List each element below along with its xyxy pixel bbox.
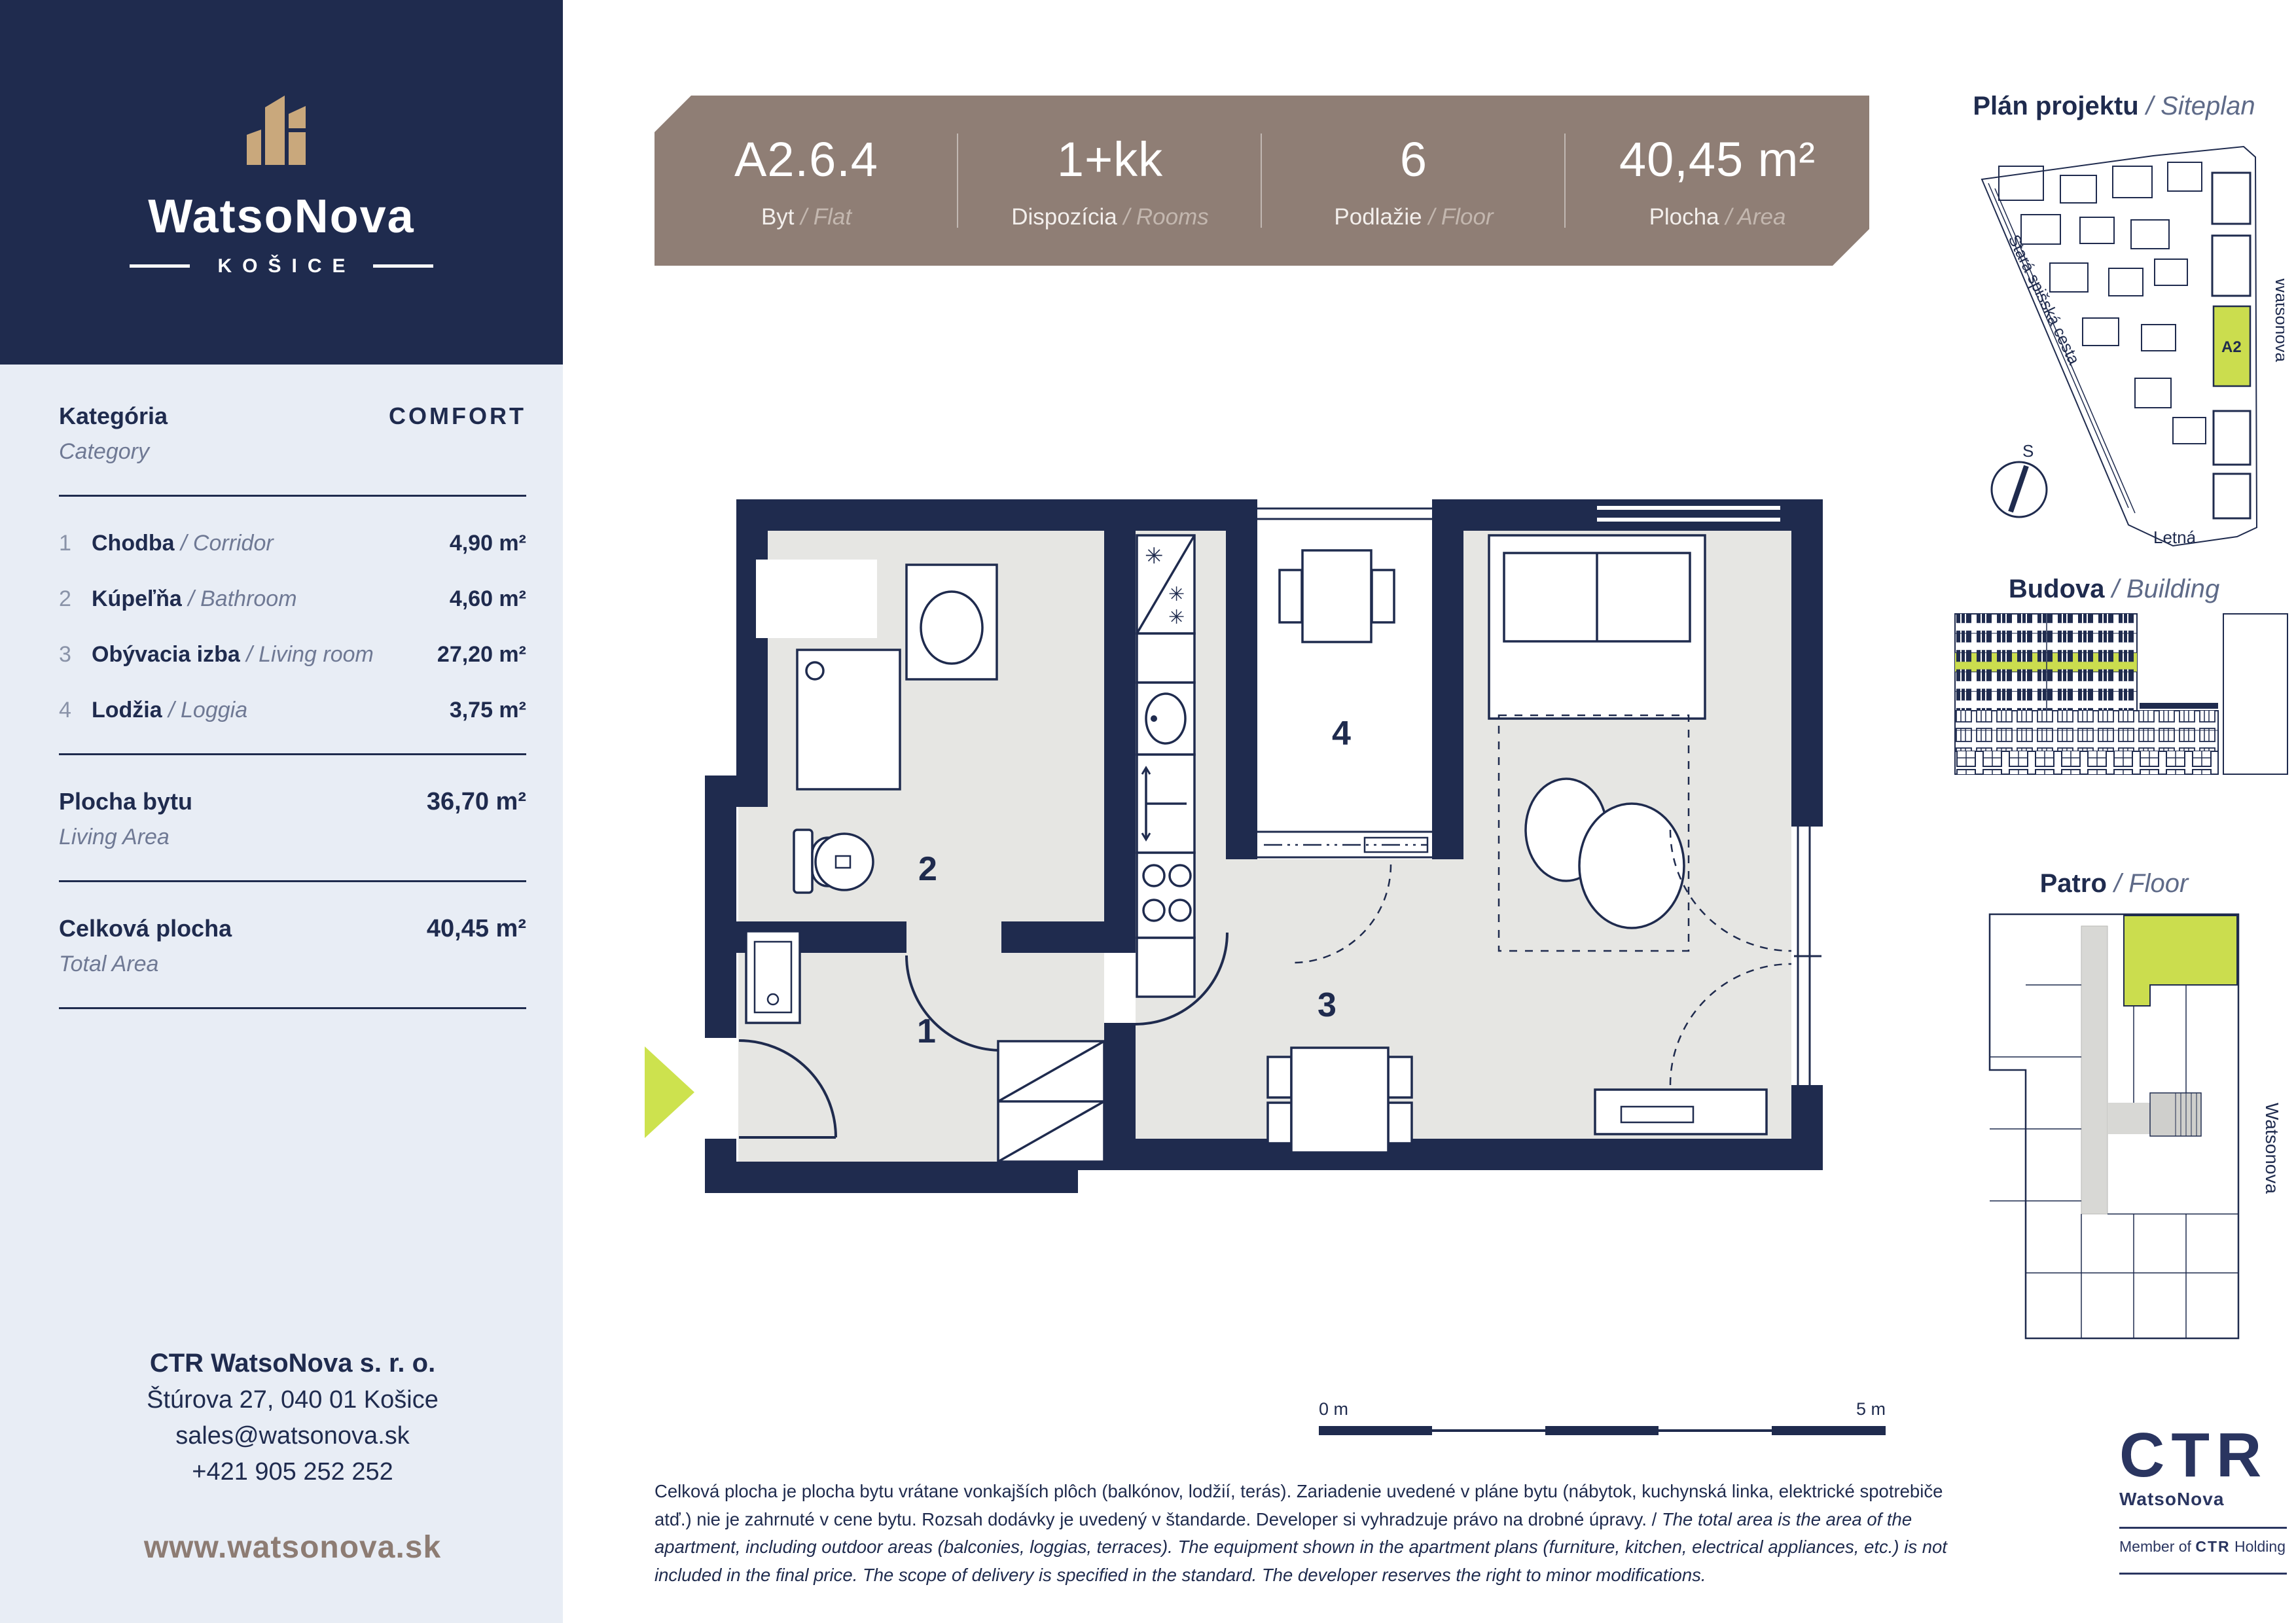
wardrobe bbox=[998, 1041, 1104, 1162]
category-label: Kategória bbox=[59, 402, 168, 430]
room-name-sk: Lodžia bbox=[92, 698, 162, 722]
room-name: Kúpeľňa / Bathroom bbox=[92, 586, 450, 612]
street-label: Letná bbox=[2153, 527, 2197, 547]
company-address: Štúrova 27, 040 01 Košice bbox=[59, 1386, 526, 1414]
a2-label: A2 bbox=[2221, 338, 2242, 356]
street-label: Stará spišská cesta bbox=[2005, 232, 2083, 367]
brand-city-row: KOŠICE bbox=[130, 255, 433, 277]
floor-value: 6 bbox=[1400, 132, 1427, 187]
siteplan-title: Plán projektu / Siteplan bbox=[1941, 92, 2287, 121]
room-name: Chodba / Corridor bbox=[92, 531, 450, 556]
chair bbox=[1268, 1103, 1291, 1143]
room-name-en: / Corridor bbox=[181, 531, 274, 556]
company-name: CTR WatsoNova s. r. o. bbox=[59, 1349, 526, 1378]
total-area-block: Celková plocha Total Area 40,45 m² bbox=[59, 915, 526, 977]
living-area-label: Plocha bytu bbox=[59, 788, 192, 815]
chair bbox=[1268, 1057, 1291, 1097]
room-name: Lodžia / Loggia bbox=[92, 698, 450, 723]
room-table: 1 Chodba / Corridor 4,90 m² 2 Kúpeľňa / … bbox=[59, 531, 526, 723]
apartment-banner: A2.6.4 Byt / Flat 1+kk Dispozícia / Room… bbox=[655, 96, 1869, 266]
snowflake-icon: ✳ bbox=[1145, 544, 1164, 569]
room-area: 4,90 m² bbox=[450, 531, 526, 556]
watsonova-building-icon bbox=[232, 88, 331, 173]
entrance-arrow-icon bbox=[645, 1046, 694, 1138]
member-line: Member of CTR Holding bbox=[2119, 1538, 2287, 1556]
table-row: 4 Lodžia / Loggia 3,75 m² bbox=[59, 698, 526, 723]
brand-name: WatsoNova bbox=[148, 190, 414, 243]
snowflake-icon: ✳ bbox=[1168, 584, 1185, 605]
disclaimer-text: Celková plocha je plocha bytu vrátane vo… bbox=[655, 1478, 1957, 1590]
floor-label: Podlažie / Floor bbox=[1334, 204, 1493, 230]
svg-text:3: 3 bbox=[1318, 986, 1336, 1024]
brand-city: KOŠICE bbox=[207, 255, 355, 277]
sidebar: WatsoNova KOŠICE Kategória Category COMF… bbox=[0, 0, 563, 1623]
category-value: COMFORT bbox=[389, 402, 526, 430]
rooms-value: 1+kk bbox=[1057, 132, 1163, 187]
floor-title: Patro / Floor bbox=[1941, 869, 2287, 899]
room-name-en: / Living room bbox=[246, 642, 374, 667]
left-rule bbox=[130, 264, 190, 268]
banner-area-cell: 40,45 m² Plocha / Area bbox=[1566, 96, 1869, 266]
pouf bbox=[1579, 804, 1684, 928]
living-area-value: 36,70 m² bbox=[427, 788, 526, 850]
chair bbox=[1388, 1103, 1412, 1143]
room-name-sk: Kúpeľňa bbox=[92, 586, 182, 611]
room-name-sk: Obývacia izba bbox=[92, 642, 240, 667]
brand-header: WatsoNova KOŠICE bbox=[0, 0, 563, 365]
living-area-label-en: Living Area bbox=[59, 825, 192, 850]
ctr-brand: WatsoNova bbox=[2119, 1489, 2287, 1510]
room-area: 27,20 m² bbox=[437, 642, 526, 668]
category-row: Kategória Category COMFORT bbox=[59, 402, 526, 465]
ctr-logo: CTR bbox=[2119, 1425, 2287, 1485]
divider bbox=[2119, 1527, 2287, 1529]
divider bbox=[2119, 1573, 2287, 1575]
room-name-en: / Bathroom bbox=[188, 586, 296, 611]
company-email[interactable]: sales@watsonova.sk bbox=[59, 1422, 526, 1450]
compass-icon: S bbox=[1992, 441, 2047, 517]
kitchen-units: ✳ ✳ ✳ bbox=[1137, 535, 1194, 997]
banner-floor-cell: 6 Podlažie / Floor bbox=[1262, 96, 1566, 266]
room-area: 3,75 m² bbox=[450, 698, 526, 723]
table-row: 3 Obývacia izba / Living room 27,20 m² bbox=[59, 642, 526, 668]
scale-bar: 0 m 5 m bbox=[1319, 1399, 1886, 1435]
flat-id: A2.6.4 bbox=[734, 132, 878, 187]
street-label: Watsonova bbox=[2272, 277, 2284, 363]
table-row: 1 Chodba / Corridor 4,90 m² bbox=[59, 531, 526, 556]
area-value: 40,45 m² bbox=[1619, 132, 1816, 187]
banner-rooms-cell: 1+kk Dispozícia / Rooms bbox=[958, 96, 1262, 266]
table-row: 2 Kúpeľňa / Bathroom 4,60 m² bbox=[59, 586, 526, 612]
flat-label: Byt / Flat bbox=[761, 204, 852, 230]
scale-start: 0 m bbox=[1319, 1399, 1348, 1419]
divider bbox=[59, 753, 526, 755]
right-rule bbox=[373, 264, 433, 268]
scale-end: 5 m bbox=[1856, 1399, 1886, 1419]
building-elevation bbox=[1954, 607, 2291, 777]
scale-segments bbox=[1319, 1426, 1886, 1435]
chair bbox=[1388, 1057, 1412, 1097]
room-number: 3 bbox=[59, 642, 92, 668]
snowflake-icon: ✳ bbox=[1168, 607, 1185, 628]
room-area: 4,60 m² bbox=[450, 586, 526, 612]
room-name: Obývacia izba / Living room bbox=[92, 642, 437, 668]
total-area-label-en: Total Area bbox=[59, 952, 232, 977]
rooms-label: Dispozícia / Rooms bbox=[1011, 204, 1209, 230]
svg-text:1: 1 bbox=[917, 1012, 936, 1050]
room-number: 4 bbox=[59, 698, 92, 723]
category-label-en: Category bbox=[59, 439, 168, 465]
floor-plate: Watsonova bbox=[1983, 906, 2284, 1358]
svg-text:4: 4 bbox=[1332, 715, 1351, 753]
apartment-card-page: WatsoNova KOŠICE Kategória Category COMF… bbox=[0, 0, 2296, 1623]
svg-text:S: S bbox=[2022, 441, 2034, 461]
svg-text:2: 2 bbox=[918, 850, 937, 888]
ctr-logo-block: CTR WatsoNova Member of CTR Holding bbox=[2119, 1425, 2287, 1575]
divider bbox=[59, 495, 526, 497]
contact-block: CTR WatsoNova s. r. o. Štúrova 27, 040 0… bbox=[59, 1349, 526, 1623]
banner-flat-cell: A2.6.4 Byt / Flat bbox=[655, 96, 958, 266]
total-area-value: 40,45 m² bbox=[427, 915, 526, 977]
sidebar-body: Kategória Category COMFORT 1 Chodba / Co… bbox=[0, 365, 563, 1623]
room-number: 1 bbox=[59, 531, 92, 556]
street-label: Watsonova bbox=[2262, 1103, 2282, 1194]
room-name-sk: Chodba bbox=[92, 531, 175, 556]
website-link[interactable]: www.watsonova.sk bbox=[59, 1529, 526, 1565]
company-phone[interactable]: +421 905 252 252 bbox=[59, 1458, 526, 1486]
siteplan-map: A2 Stará spišská cesta Watsonova Letná S bbox=[1957, 128, 2284, 547]
living-area-block: Plocha bytu Living Area 36,70 m² bbox=[59, 788, 526, 850]
area-label: Plocha / Area bbox=[1649, 204, 1786, 230]
room-number: 2 bbox=[59, 586, 92, 612]
room-name-en: / Loggia bbox=[168, 698, 247, 722]
floor-plan: ✳ ✳ ✳ bbox=[641, 496, 1839, 1196]
total-area-label: Celková plocha bbox=[59, 915, 232, 942]
dining-table bbox=[1291, 1048, 1388, 1152]
divider bbox=[59, 880, 526, 882]
building-title: Budova / Building bbox=[1941, 575, 2287, 604]
